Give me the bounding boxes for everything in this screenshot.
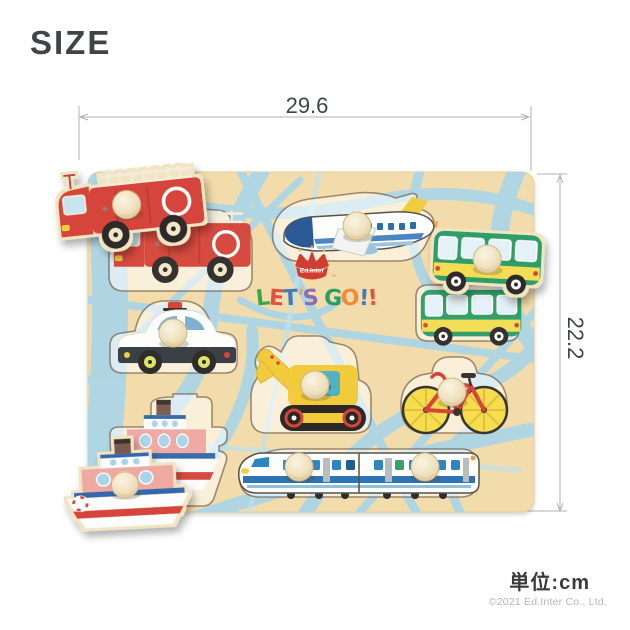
width-dimension-label: 29.6 <box>283 93 331 119</box>
brand-logo-text: Ed.Inter <box>300 268 325 275</box>
brand-logo-tm: ™ <box>331 274 336 280</box>
copyright-text: ©2021 Ed.Inter Co., Ltd. <box>489 596 607 608</box>
puzzle-board: Ed.Inter ™ <box>55 160 546 530</box>
height-dimension-label: 22.2 <box>562 314 588 362</box>
slogan-letter: ! <box>367 288 378 311</box>
slogan-letter: S <box>302 287 319 310</box>
train-piece <box>239 453 479 499</box>
slogan: LET'S GO!! <box>256 288 366 310</box>
slogan-letter: O <box>340 287 360 310</box>
slogan-letter: E <box>268 288 284 311</box>
unit-label: 単位:cm <box>509 566 590 595</box>
size-diagram: Ed.Inter ™ SIZE 29.6 22.2 LET'S GO!! 単位:… <box>0 0 630 630</box>
page-title: SIZE <box>30 24 111 62</box>
